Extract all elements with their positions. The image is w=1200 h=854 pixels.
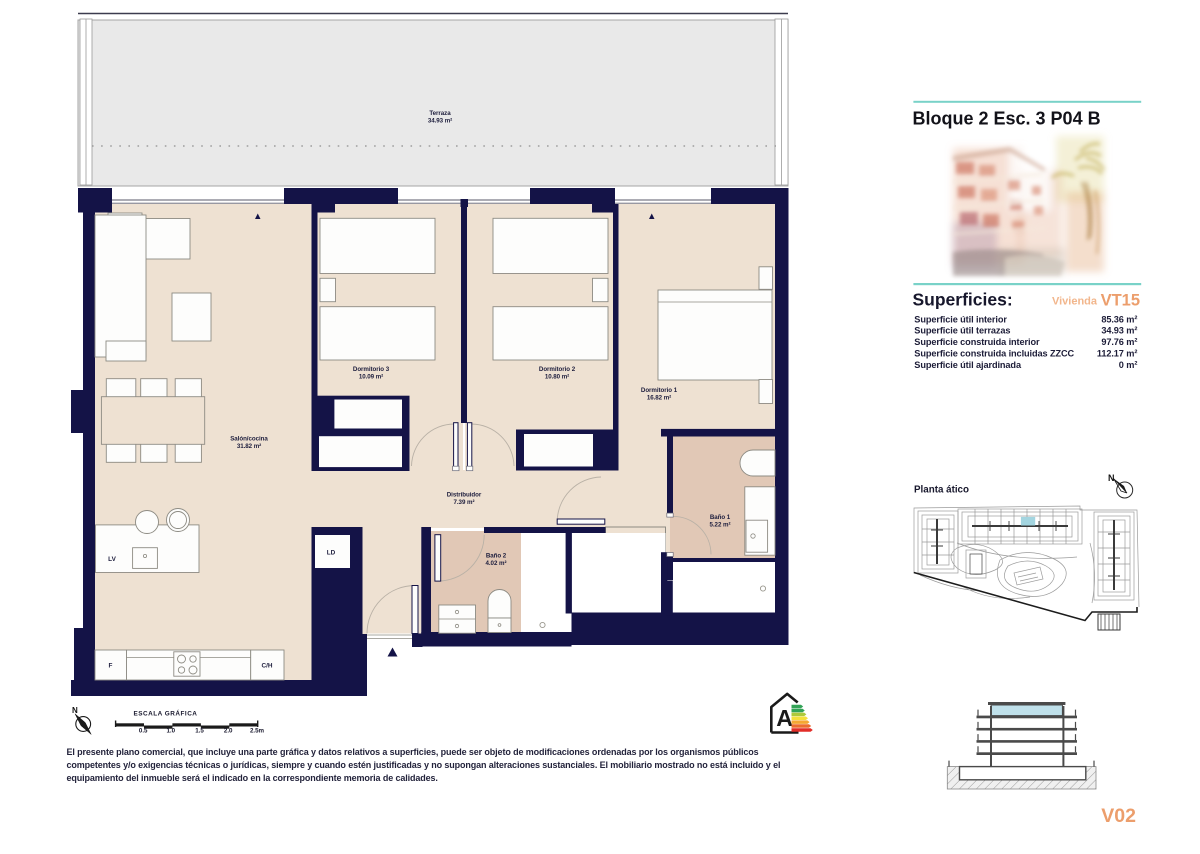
svg-text:Dormitorio 3: Dormitorio 3 (353, 366, 390, 373)
svg-text:ESCALA GRÁFICA: ESCALA GRÁFICA (134, 709, 198, 718)
svg-text:N: N (1108, 473, 1115, 483)
svg-text:5.22 m²: 5.22 m² (710, 522, 731, 529)
svg-text:Vivienda: Vivienda (1052, 296, 1098, 308)
svg-text:112.17 m²: 112.17 m² (1097, 349, 1138, 359)
svg-text:competentes y/o exigencias téc: competentes y/o exigencias técnicas o ju… (67, 760, 781, 770)
svg-text:Superficie útil terrazas: Superficie útil terrazas (914, 326, 1010, 336)
svg-text:2.0: 2.0 (224, 728, 233, 735)
svg-text:34.93 m²: 34.93 m² (428, 118, 452, 125)
svg-text:Dormitorio 2: Dormitorio 2 (539, 366, 576, 373)
svg-text:4.02 m²: 4.02 m² (486, 560, 507, 567)
svg-text:Superficie útil interior: Superficie útil interior (914, 314, 1007, 324)
svg-text:Bloque 2 Esc. 3 P04 B: Bloque 2 Esc. 3 P04 B (913, 109, 1101, 129)
svg-text:F: F (109, 663, 113, 670)
svg-text:2.5m: 2.5m (250, 728, 265, 735)
svg-text:equipamiento del inmueble será: equipamiento del inmueble será el indica… (67, 773, 438, 783)
svg-text:Superficie construida interior: Superficie construida interior (914, 337, 1040, 347)
svg-text:0 m²: 0 m² (1119, 360, 1138, 370)
svg-text:10.09 m²: 10.09 m² (359, 374, 383, 381)
svg-text:V02: V02 (1101, 805, 1136, 827)
svg-text:10.80 m²: 10.80 m² (545, 374, 569, 381)
svg-text:Dormitorio 1: Dormitorio 1 (641, 387, 678, 394)
svg-text:Salón/cocina: Salón/cocina (230, 436, 268, 443)
svg-text:Superficie construida incluida: Superficie construida incluidas ZZCC (914, 349, 1074, 359)
svg-text:Planta ático: Planta ático (914, 485, 969, 496)
svg-text:Distribuidor: Distribuidor (447, 492, 482, 499)
svg-text:85.36 m²: 85.36 m² (1101, 314, 1137, 324)
svg-text:Superficies:: Superficies: (913, 290, 1013, 310)
svg-text:1.0: 1.0 (166, 728, 175, 735)
svg-text:Baño 1: Baño 1 (710, 514, 731, 521)
svg-text:N: N (72, 706, 78, 715)
svg-text:LD: LD (327, 550, 336, 557)
svg-text:C/H: C/H (261, 663, 272, 670)
svg-text:34.93 m²: 34.93 m² (1101, 326, 1137, 336)
svg-text:0.5: 0.5 (139, 728, 148, 735)
svg-text:Terraza: Terraza (429, 110, 451, 117)
svg-text:LV: LV (108, 556, 116, 563)
svg-text:A: A (776, 705, 793, 731)
svg-text:31.82 m²: 31.82 m² (237, 443, 261, 450)
svg-text:1.5: 1.5 (195, 728, 204, 735)
svg-text:7.39 m²: 7.39 m² (454, 499, 475, 506)
svg-text:El presente plano comercial, q: El presente plano comercial, que incluye… (67, 747, 759, 757)
svg-text:97.76 m²: 97.76 m² (1101, 337, 1137, 347)
svg-text:Superficie útil ajardinada: Superficie útil ajardinada (914, 360, 1022, 370)
svg-text:Baño 2: Baño 2 (486, 553, 507, 560)
svg-text:VT15: VT15 (1101, 292, 1140, 310)
svg-text:16.82 m²: 16.82 m² (647, 395, 671, 402)
